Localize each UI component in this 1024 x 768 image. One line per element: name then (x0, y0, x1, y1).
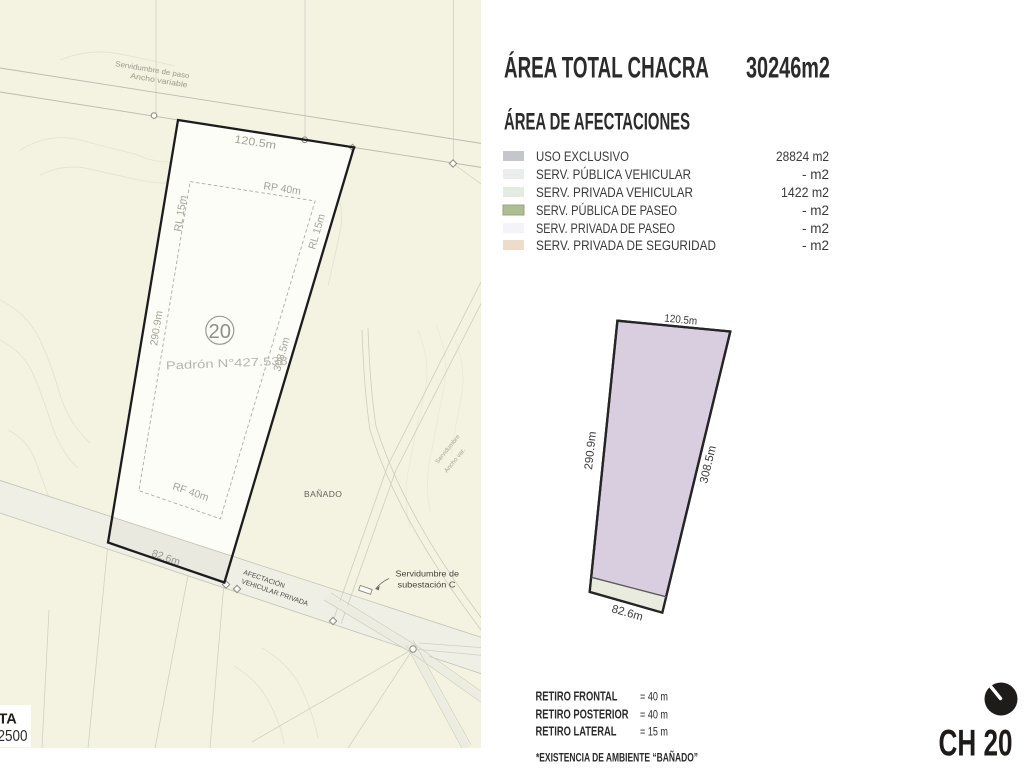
svg-text:ÁREA TOTAL CHACRA: ÁREA TOTAL CHACRA (504, 51, 709, 85)
svg-text:CH 20: CH 20 (939, 723, 1013, 764)
svg-text:1422 m2: 1422 m2 (781, 185, 829, 200)
svg-text:RETIRO POSTERIOR: RETIRO POSTERIOR (536, 707, 629, 722)
svg-text:BAÑADO: BAÑADO (304, 489, 342, 499)
svg-text:- m2: - m2 (802, 238, 829, 253)
svg-text:= 40 m: = 40 m (640, 689, 668, 703)
svg-text:= 40 m: = 40 m (640, 708, 668, 722)
svg-text:SERV. PÚBLICA VEHICULAR: SERV. PÚBLICA VEHICULAR (536, 167, 691, 182)
svg-text:Servidumbre de: Servidumbre de (396, 570, 460, 579)
svg-text:SERV. PRIVADA DE SEGURIDAD: SERV. PRIVADA DE SEGURIDAD (536, 238, 716, 253)
svg-text:SERV. PRIVADA DE PASEO: SERV. PRIVADA DE PASEO (536, 221, 675, 236)
svg-text:SERV. PRIVADA VEHICULAR: SERV. PRIVADA VEHICULAR (536, 185, 693, 200)
svg-text:2500: 2500 (0, 728, 28, 745)
svg-text:= 15 m: = 15 m (640, 725, 668, 739)
svg-text:subestación C: subestación C (398, 581, 456, 590)
svg-text:USO EXCLUSIVO: USO EXCLUSIVO (536, 149, 629, 164)
svg-text:TA: TA (0, 712, 17, 728)
svg-text:20: 20 (209, 320, 232, 343)
svg-text:- m2: - m2 (802, 167, 829, 182)
svg-text:ÁREA DE AFECTACIONES: ÁREA DE AFECTACIONES (504, 108, 690, 136)
svg-text:- m2: - m2 (802, 221, 829, 236)
svg-text:28824 m2: 28824 m2 (776, 149, 829, 164)
svg-text:*EXISTENCIA DE AMBIENTE “BAÑAD: *EXISTENCIA DE AMBIENTE “BAÑADO” (536, 752, 698, 765)
svg-text:RETIRO LATERAL: RETIRO LATERAL (536, 724, 617, 739)
svg-text:SERV. PÚBLICA DE PASEO: SERV. PÚBLICA DE PASEO (536, 203, 677, 218)
svg-text:RETIRO FRONTAL: RETIRO FRONTAL (536, 688, 618, 703)
svg-text:- m2: - m2 (802, 203, 829, 218)
svg-text:30246m2: 30246m2 (746, 52, 830, 85)
